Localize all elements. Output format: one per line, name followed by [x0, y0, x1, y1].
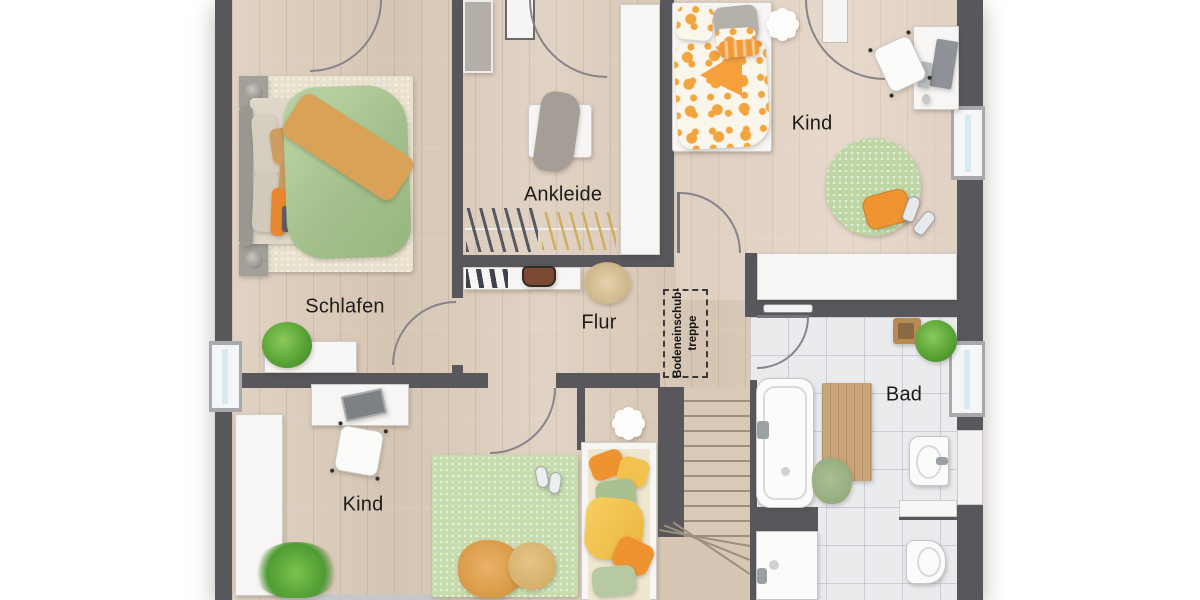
wall-kind-flur-stub: [745, 253, 757, 317]
window-right-kind: [951, 106, 985, 180]
towel-rail: [763, 304, 813, 313]
outer-wall-left-upper: [215, 0, 232, 345]
pouf-straw: [508, 542, 556, 590]
door-leaf-flur-kind: [677, 192, 680, 253]
mouse: [922, 94, 930, 104]
tub-drain: [781, 467, 790, 476]
clothes-hangers-dark: [466, 208, 538, 252]
room-label-kind-top: Kind: [792, 113, 833, 136]
toilet-seat: [917, 547, 941, 577]
room-label-kind-bottom: Kind: [343, 494, 384, 517]
room-label-bad: Bad: [886, 384, 922, 407]
flower-table-shape: [622, 417, 635, 430]
cabinet-ankleide: [463, 0, 493, 73]
window-right-bad: [949, 341, 985, 417]
tub-faucet: [757, 421, 769, 439]
shower-faucet: [757, 568, 767, 584]
bathtub: [756, 378, 814, 508]
toilet-partition: [899, 500, 957, 517]
door-leaf-bad: [757, 315, 809, 318]
attic-ladder-line2: treppe: [687, 315, 699, 350]
room-label-schlafen: Schlafen: [305, 296, 384, 319]
flower-table-kind-top: [766, 8, 800, 42]
outer-wall-left-lower: [215, 412, 232, 600]
plant-bad: [915, 320, 957, 362]
pillow-dotted-1: [676, 4, 715, 41]
staircase: [684, 387, 750, 540]
window-glass: [222, 349, 228, 404]
wall-under-tub: [756, 507, 818, 531]
outer-wall-right-3: [957, 415, 983, 430]
right-wall-niche: [957, 430, 983, 505]
wall-schlafen-kind-b: [556, 373, 660, 388]
window-glass: [964, 350, 970, 409]
outer-wall-right-4: [957, 505, 983, 600]
sink-tap: [936, 457, 948, 465]
shoes-row: [466, 269, 508, 288]
floor-plan-image: Schlafen Ankleide Flur Bodeneinschub- tr…: [0, 0, 1200, 600]
lamp: [245, 251, 263, 269]
outer-wall-right-1: [957, 0, 983, 110]
bag-brown: [522, 266, 556, 287]
desk-chair-kind-bottom: [333, 425, 384, 478]
shower: [756, 531, 818, 600]
attic-ladder-label: Bodeneinschub- treppe: [671, 288, 701, 378]
towel-green: [812, 458, 852, 504]
cabinet-kind-top: [757, 253, 957, 300]
outer-wall-right-2: [957, 178, 983, 345]
window-glass: [965, 115, 971, 172]
pampas-plant: [583, 262, 631, 304]
wardrobe-ankleide: [620, 4, 660, 255]
stairs-winders: [658, 537, 750, 600]
clothes-hangers-gold: [542, 212, 616, 250]
flower-table-shape: [776, 18, 789, 31]
wall-schlafen-ankleide: [452, 0, 463, 298]
room-label-ankleide: Ankleide: [524, 184, 602, 207]
pillow-orange-stripe: [718, 39, 759, 59]
attic-ladder-line1: Bodeneinschub-: [672, 288, 684, 378]
plant-schlafen: [262, 322, 312, 368]
flower-table-kind-bottom: [610, 406, 648, 442]
sink: [909, 436, 949, 486]
wall-kind-bed-alcove: [577, 388, 585, 450]
pillow-green-kb2: [591, 564, 637, 598]
nightstand-bottom: [239, 244, 268, 276]
tub-inner: [763, 386, 807, 500]
palm-plant: [254, 542, 338, 598]
toilet: [906, 540, 946, 584]
wall-stairwell-side: [658, 387, 684, 537]
towel-on-stool: [898, 323, 914, 339]
shower-drain: [769, 560, 779, 570]
wall-ankleide-flur: [455, 255, 663, 267]
room-label-flur: Flur: [581, 312, 616, 335]
window-left-kind: [209, 341, 242, 412]
